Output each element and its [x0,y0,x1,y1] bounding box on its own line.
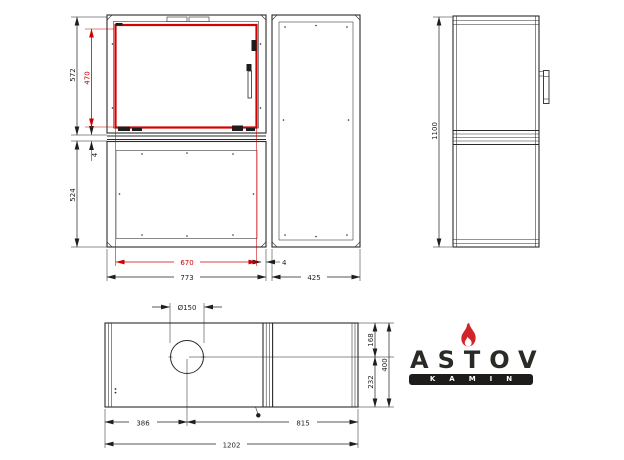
side-view [453,16,549,247]
glass-door-highlight [116,25,257,128]
door-hinge-right-small [246,128,255,131]
dim-glass-width: 670 [180,259,193,267]
front-door-frame-outer [107,15,266,133]
dim-flue-from-left: 386 [136,419,150,427]
dim-overall-width: 1202 [223,441,241,449]
flame-icon [460,323,477,347]
front-base-outer [107,142,266,248]
door-latch-lever [248,71,252,98]
brand-subtitle: KAMIN [430,376,526,383]
door-hinge-left [118,127,130,132]
brand-name: ASTOV [410,348,546,372]
dimension-lines-red: 470 670 [84,29,258,267]
top-view-outer [105,323,358,407]
top-view [105,323,358,417]
dim-overall-depth: 400 [381,358,389,371]
front-base-inner [116,151,257,239]
dim-side-depth: 425 [307,274,320,282]
side-mid-band [453,131,539,145]
side-panel-inner [279,22,353,240]
front-view [107,15,266,247]
damper-knob [256,407,261,417]
dim-gap-horizontal: 4 [282,259,287,267]
dim-front-width: 773 [180,274,193,282]
dim-gap-vertical: 4 [91,152,99,157]
side-view-outer [453,16,539,247]
door-latch-pivot [247,64,252,71]
dim-front-overall-height: 572 [69,68,77,81]
door-top-hinge [116,23,123,26]
astov-logo: ASTOV KAMIN [403,322,555,388]
top-view-joint-band [263,323,273,407]
dim-flue-to-right: 815 [296,419,309,427]
front-door-frame-inner [114,22,259,129]
top-vent-slot [189,17,209,22]
side-panel-view [272,15,360,247]
drawing-canvas: 572 524 4 773 4 425 1100 Ø1 [0,0,624,460]
top-vent-slot [167,17,187,22]
dim-flue-to-back: 232 [367,375,375,388]
dim-flue-diameter: Ø150 [178,304,197,312]
door-latch-block [252,40,257,51]
door-hinge-left-small [132,128,142,131]
dimension-lines: 572 524 4 773 4 425 1100 Ø1 [69,17,452,449]
door-handle [539,71,549,104]
dim-overall-height: 1100 [431,122,439,140]
brand-subtitle-bar: KAMIN [409,374,533,385]
dim-glass-height: 470 [84,71,92,84]
dim-flue-from-front: 168 [367,333,375,346]
door-hinge-right [232,126,243,132]
technical-drawing-page: 572 524 4 773 4 425 1100 Ø1 [0,0,624,460]
dim-base-height: 524 [69,188,77,202]
side-panel-outer [272,15,360,247]
